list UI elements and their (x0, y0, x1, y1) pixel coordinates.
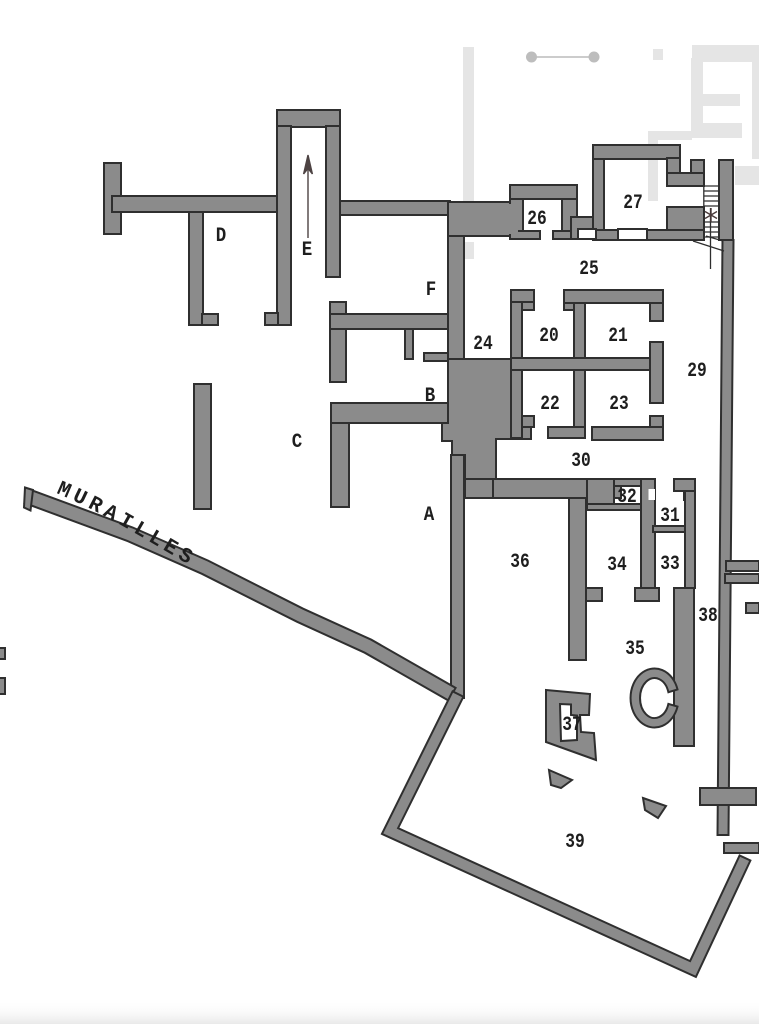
svg-text:24: 24 (473, 333, 493, 356)
svg-text:36: 36 (510, 551, 530, 574)
svg-text:D: D (216, 225, 227, 248)
svg-text:23: 23 (609, 393, 629, 416)
svg-text:E: E (302, 239, 313, 262)
svg-text:38: 38 (698, 605, 718, 628)
svg-text:21: 21 (608, 325, 628, 348)
svg-text:29: 29 (687, 360, 707, 383)
svg-text:MURAILLES: MURAILLES (53, 478, 200, 572)
svg-text:C: C (292, 431, 303, 454)
svg-text:25: 25 (579, 258, 599, 281)
svg-text:22: 22 (540, 393, 560, 416)
svg-text:B: B (425, 385, 436, 408)
svg-text:20: 20 (539, 325, 559, 348)
svg-text:30: 30 (571, 450, 591, 473)
svg-text:31: 31 (660, 505, 680, 528)
svg-text:39: 39 (565, 831, 585, 854)
svg-text:32: 32 (617, 486, 637, 509)
svg-text:33: 33 (660, 553, 680, 576)
svg-text:F: F (426, 279, 437, 302)
svg-text:26: 26 (527, 208, 547, 231)
svg-text:27: 27 (623, 192, 643, 215)
svg-text:37: 37 (562, 714, 582, 737)
svg-text:A: A (424, 504, 435, 527)
svg-text:35: 35 (625, 638, 645, 661)
svg-text:34: 34 (607, 554, 627, 577)
